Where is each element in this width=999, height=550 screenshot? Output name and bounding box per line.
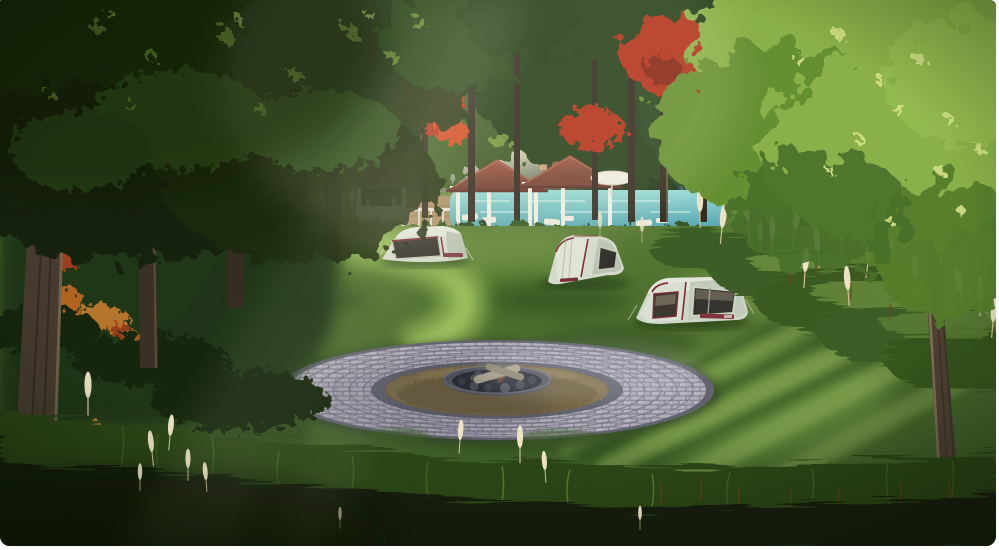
park-scene [0, 0, 996, 546]
screenshot [0, 0, 999, 550]
atmosphere [0, 0, 996, 546]
vignette [0, 0, 996, 546]
render-card [0, 0, 996, 546]
